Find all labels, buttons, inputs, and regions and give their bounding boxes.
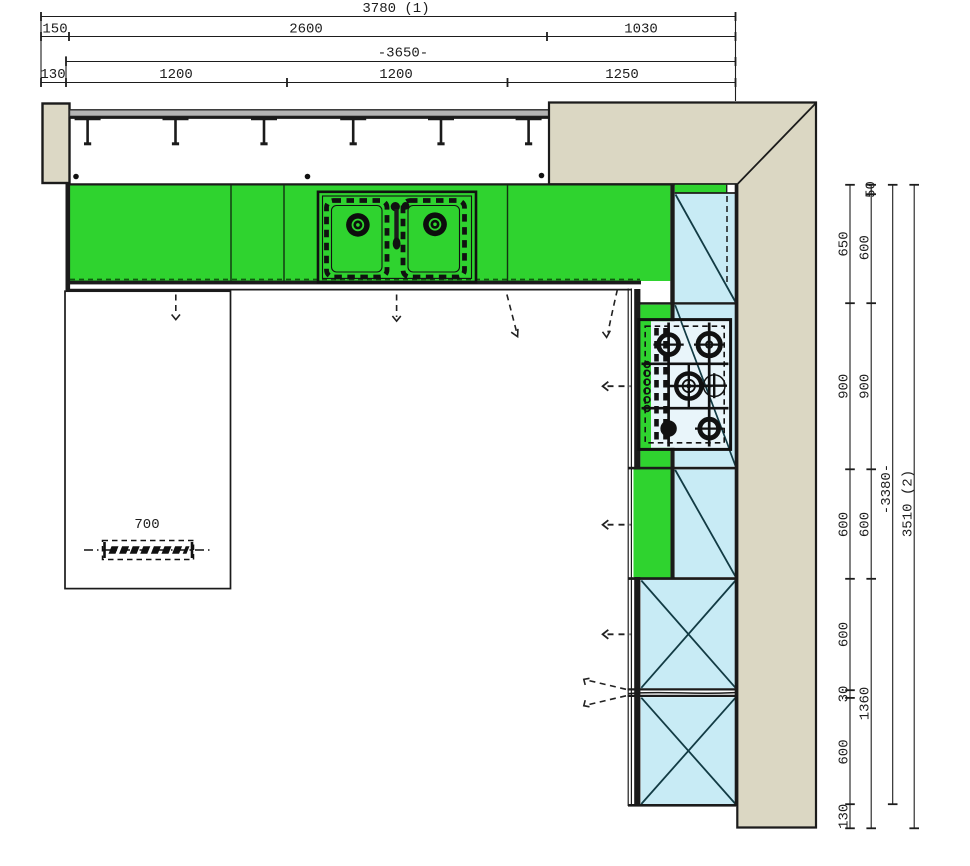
- svg-text:600: 600: [837, 622, 853, 647]
- svg-text:1200: 1200: [379, 67, 413, 83]
- svg-text:-3650-: -3650-: [378, 46, 428, 62]
- svg-text:50: 50: [864, 181, 880, 198]
- svg-text:600: 600: [837, 739, 853, 764]
- svg-text:3780 (1): 3780 (1): [362, 1, 429, 17]
- svg-text:1360: 1360: [858, 687, 874, 721]
- svg-text:600: 600: [858, 512, 874, 537]
- svg-text:1030: 1030: [624, 22, 658, 38]
- svg-text:2600: 2600: [289, 22, 323, 38]
- svg-text:3510 (2): 3510 (2): [901, 470, 917, 537]
- svg-text:130: 130: [837, 804, 853, 829]
- svg-text:650: 650: [837, 231, 853, 256]
- svg-text:150: 150: [42, 22, 67, 38]
- svg-text:1200: 1200: [159, 67, 193, 83]
- svg-text:600: 600: [858, 235, 874, 260]
- svg-text:700: 700: [134, 517, 159, 533]
- svg-text:600: 600: [837, 512, 853, 537]
- svg-text:1250: 1250: [605, 67, 639, 83]
- svg-text:130: 130: [40, 67, 65, 83]
- svg-text:-3380-: -3380-: [879, 464, 895, 514]
- svg-text:900: 900: [837, 374, 853, 399]
- svg-text:30: 30: [837, 686, 853, 703]
- svg-text:900: 900: [858, 374, 874, 399]
